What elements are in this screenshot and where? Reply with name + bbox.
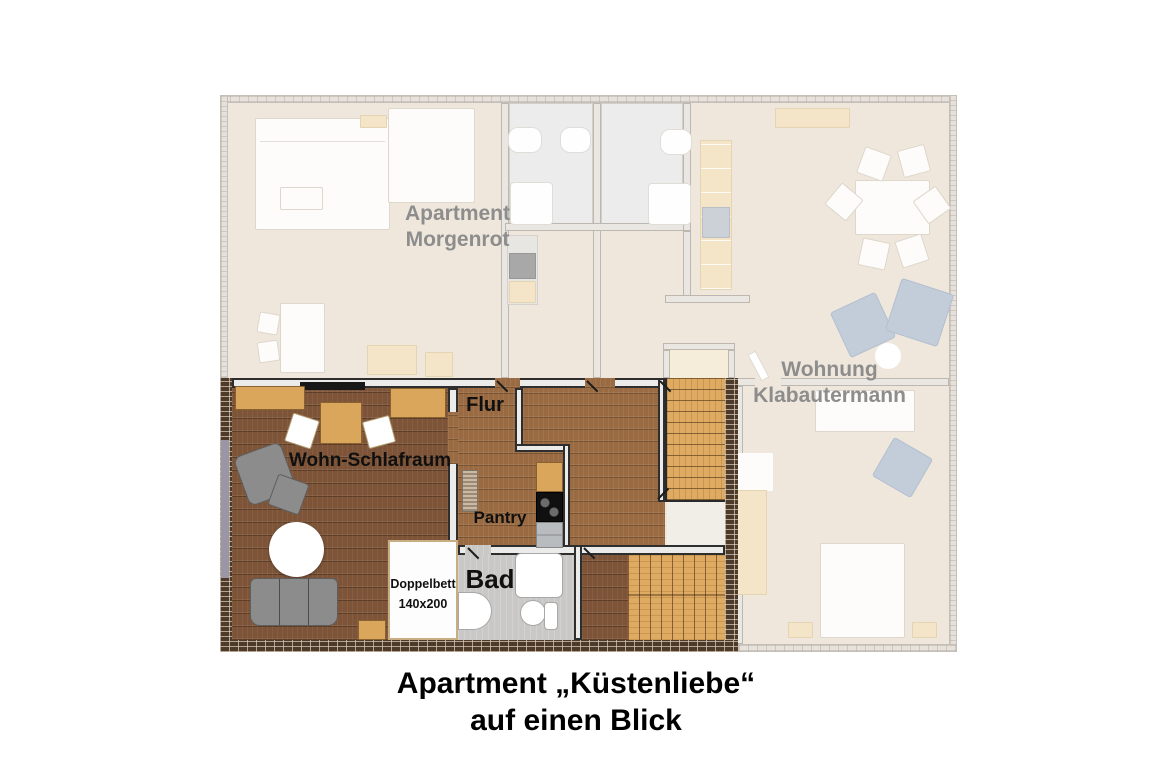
page-title: Apartment „Küstenliebe“ auf einen Blick [0,665,1152,739]
stairs-landing [667,502,725,550]
toilet [508,127,542,153]
label-wohnung-klabautermann: Wohnung Klabautermann [732,357,927,409]
outer-wall-bottom-right [738,644,957,652]
door-swing [737,453,773,491]
radiator [462,470,478,512]
morgenrot-nightstand [360,115,387,128]
bottom-hall-floor [582,555,628,640]
stairs-upper [665,378,725,502]
label-wohn-schlafraum: Wohn-Schlafraum [270,450,470,472]
stair-shaft-landing [670,350,728,378]
side-table [358,620,386,640]
toilet-tank [544,602,558,630]
nightstand [912,622,937,638]
apartment-kuestenliebe: Doppelbett 140x200 Wohn-Schlafraum Flur … [220,378,738,652]
wall-corridor-right [683,231,691,303]
klabautermann-wardrobe [737,490,767,595]
morgenrot-chair [256,311,280,335]
morgenrot-bench [367,345,417,375]
stairs-lower-midline [628,594,725,596]
morgenrot-chair [257,340,281,364]
toilet-bowl [520,600,546,626]
wall-flur-corridor [515,388,523,450]
wall-pantry-top [515,444,570,452]
stair-shaft-left-wall [663,350,670,378]
kitchenette-cabinet-faded [509,281,536,303]
morgenrot-bed-double [388,108,475,203]
label-bad: Bad [460,564,520,595]
shower [648,183,691,225]
morgenrot-bench [425,352,453,377]
stair-shaft-top-wall [663,343,735,350]
doppelbett: Doppelbett 140x200 [388,540,458,640]
title-line2: auf einen Blick [0,702,1152,739]
brick-wall-right [725,378,738,640]
round-rug [269,522,324,577]
kitchenette-appliance-faded [509,253,536,279]
morgenrot-line1: Apartment [370,201,545,227]
dining-chair [857,237,890,270]
outer-wall-right [949,95,957,652]
klabautermann-bed [820,543,905,638]
title-line1: Apartment „Küstenliebe“ [0,665,1152,702]
label-apartment-morgenrot: Apartment Morgenrot [370,201,545,253]
nightstand [788,622,813,638]
mini-fridge [536,522,563,548]
morgenrot-line2: Morgenrot [370,227,545,253]
cooktop [536,492,563,522]
window-strip [221,440,229,578]
label-pantry: Pantry [464,508,536,528]
dining-table [320,402,362,444]
doppelbett-label-line2: 140x200 [390,594,456,614]
klabautermann-line1: Wohnung [732,357,927,383]
stairs-lower [628,555,725,640]
klabautermann-appliance [702,207,730,238]
wall-corridor-horizontal [665,295,750,303]
wall-between-baths [593,103,601,378]
wall-bad-right [574,545,582,640]
toilet [660,129,692,155]
wall-pantry-right [563,444,570,550]
outer-wall-top [220,95,957,103]
floor-plan: Apartment Morgenrot Wohnung Klabauterman… [220,95,957,652]
kitchen-counter [536,462,563,492]
klabautermann-line2: Klabautermann [732,383,927,409]
brick-wall-bottom [220,640,738,652]
sideboard [235,386,305,410]
label-flur: Flur [460,394,510,417]
outer-wall-left-upper [220,95,228,378]
morgenrot-side-table [280,187,323,210]
shower [515,553,563,598]
tv [300,382,365,390]
wall-stairs-left [658,378,665,502]
desk [390,388,446,418]
morgenrot-dining-table [280,303,325,373]
morgenrot-bed-pillow-line [260,141,385,142]
doppelbett-label-line1: Doppelbett [390,574,456,594]
sink [560,127,591,153]
klabautermann-sideboard [775,108,850,128]
sofa [250,578,338,626]
